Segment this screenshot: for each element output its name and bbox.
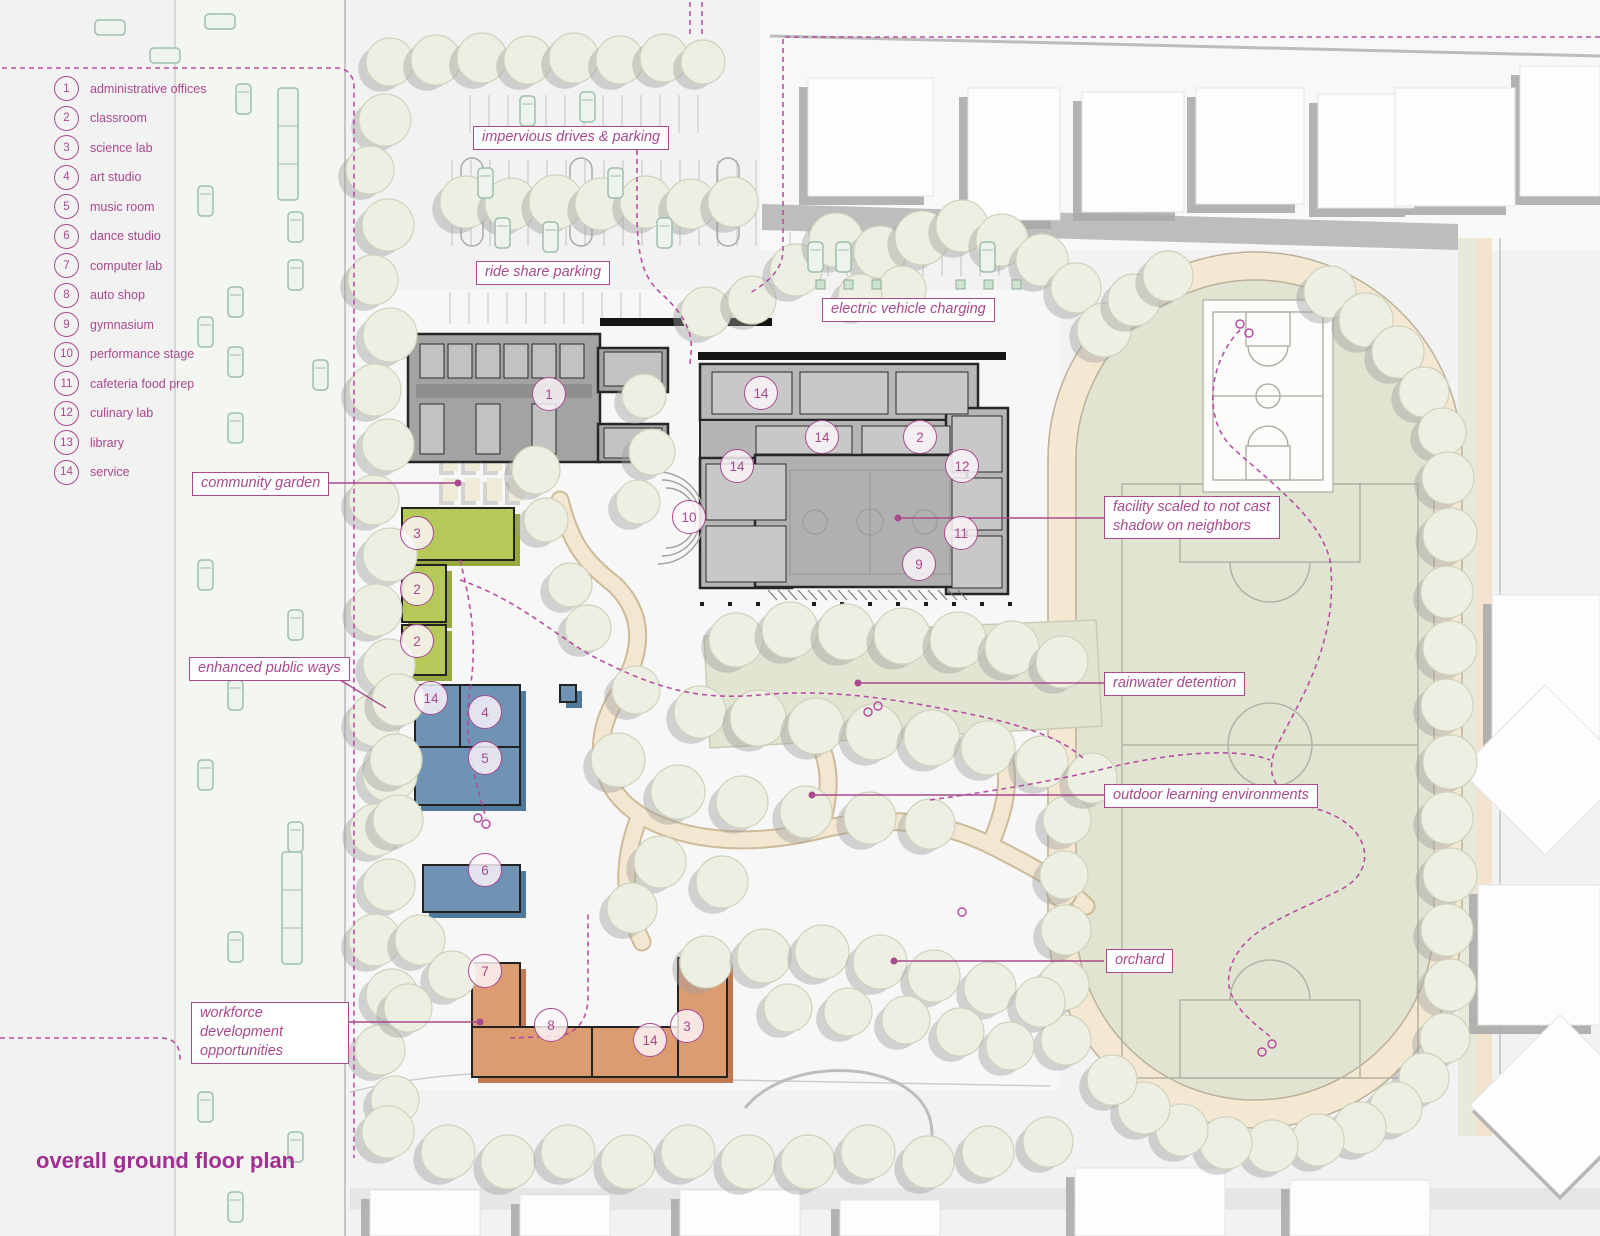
legend-item-14: 14service [54,458,207,488]
legend-item-13: 13library [54,428,207,458]
plan-marker-14: 14 [744,376,778,410]
legend-number: 10 [54,342,79,367]
legend: 1administrative offices2classroom3scienc… [54,74,207,487]
callout-ev-charging: electric vehicle charging [822,298,995,322]
legend-number: 13 [54,430,79,455]
legend-item-11: 11cafeteria food prep [54,369,207,399]
plan-marker-2: 2 [400,624,434,658]
legend-number: 11 [54,371,79,396]
legend-label: administrative offices [90,82,207,96]
legend-item-5: 5music room [54,192,207,222]
callout-ride-share-parking: ride share parking [476,261,610,285]
legend-label: gymnasium [90,318,154,332]
legend-item-7: 7computer lab [54,251,207,281]
legend-label: cafeteria food prep [90,377,194,391]
plan-marker-1: 1 [532,377,566,411]
basketball-court [1203,300,1333,492]
legend-number: 6 [54,224,79,249]
plan-marker-2: 2 [400,572,434,606]
callout-rainwater-detention: rainwater detention [1104,672,1245,696]
plan-marker-3: 3 [670,1009,704,1043]
legend-item-2: 2classroom [54,104,207,134]
legend-label: service [90,465,130,479]
legend-number: 7 [54,253,79,278]
callout-facility-scaled: facility scaled to not cast shadow on ne… [1104,496,1280,539]
legend-number: 3 [54,135,79,160]
legend-label: performance stage [90,347,194,361]
callout-orchard: orchard [1106,949,1173,973]
plan-marker-5: 5 [468,741,502,775]
callout-enhanced-public-ways: enhanced public ways [189,657,350,681]
legend-item-6: 6dance studio [54,222,207,252]
plan-marker-9: 9 [902,547,936,581]
plan-marker-10: 10 [672,500,706,534]
legend-label: culinary lab [90,406,153,420]
callout-outdoor-learning: outdoor learning environments [1104,784,1318,808]
plan-marker-7: 7 [468,954,502,988]
plan-marker-8: 8 [534,1008,568,1042]
callout-workforce-development: workforce development opportunities [191,1002,349,1064]
plan-marker-14: 14 [414,681,448,715]
legend-label: auto shop [90,288,145,302]
plan-marker-14: 14 [720,449,754,483]
legend-number: 1 [54,76,79,101]
legend-item-1: 1administrative offices [54,74,207,104]
legend-item-9: 9gymnasium [54,310,207,340]
plan-marker-4: 4 [468,695,502,729]
plan-marker-14: 14 [633,1023,667,1057]
plan-marker-11: 11 [944,516,978,550]
legend-label: art studio [90,170,141,184]
legend-label: classroom [90,111,147,125]
site-plan-canvas: 1administrative offices2classroom3scienc… [0,0,1600,1236]
page-title: overall ground floor plan [36,1148,295,1174]
legend-item-4: 4art studio [54,163,207,193]
legend-number: 9 [54,312,79,337]
legend-number: 12 [54,401,79,426]
legend-number: 2 [54,106,79,131]
callout-impervious-parking: impervious drives & parking [473,126,669,150]
plan-marker-3: 3 [400,516,434,550]
legend-label: music room [90,200,155,214]
plan-marker-12: 12 [945,449,979,483]
legend-item-8: 8auto shop [54,281,207,311]
legend-label: dance studio [90,229,161,243]
legend-label: science lab [90,141,153,155]
legend-item-3: 3science lab [54,133,207,163]
legend-number: 14 [54,460,79,485]
legend-number: 8 [54,283,79,308]
legend-label: library [90,436,124,450]
legend-number: 5 [54,194,79,219]
callout-community-garden: community garden [192,472,329,496]
plan-marker-6: 6 [468,853,502,887]
plan-marker-2: 2 [903,420,937,454]
plan-marker-14: 14 [805,420,839,454]
legend-item-10: 10performance stage [54,340,207,370]
legend-item-12: 12culinary lab [54,399,207,429]
legend-number: 4 [54,165,79,190]
legend-label: computer lab [90,259,162,273]
